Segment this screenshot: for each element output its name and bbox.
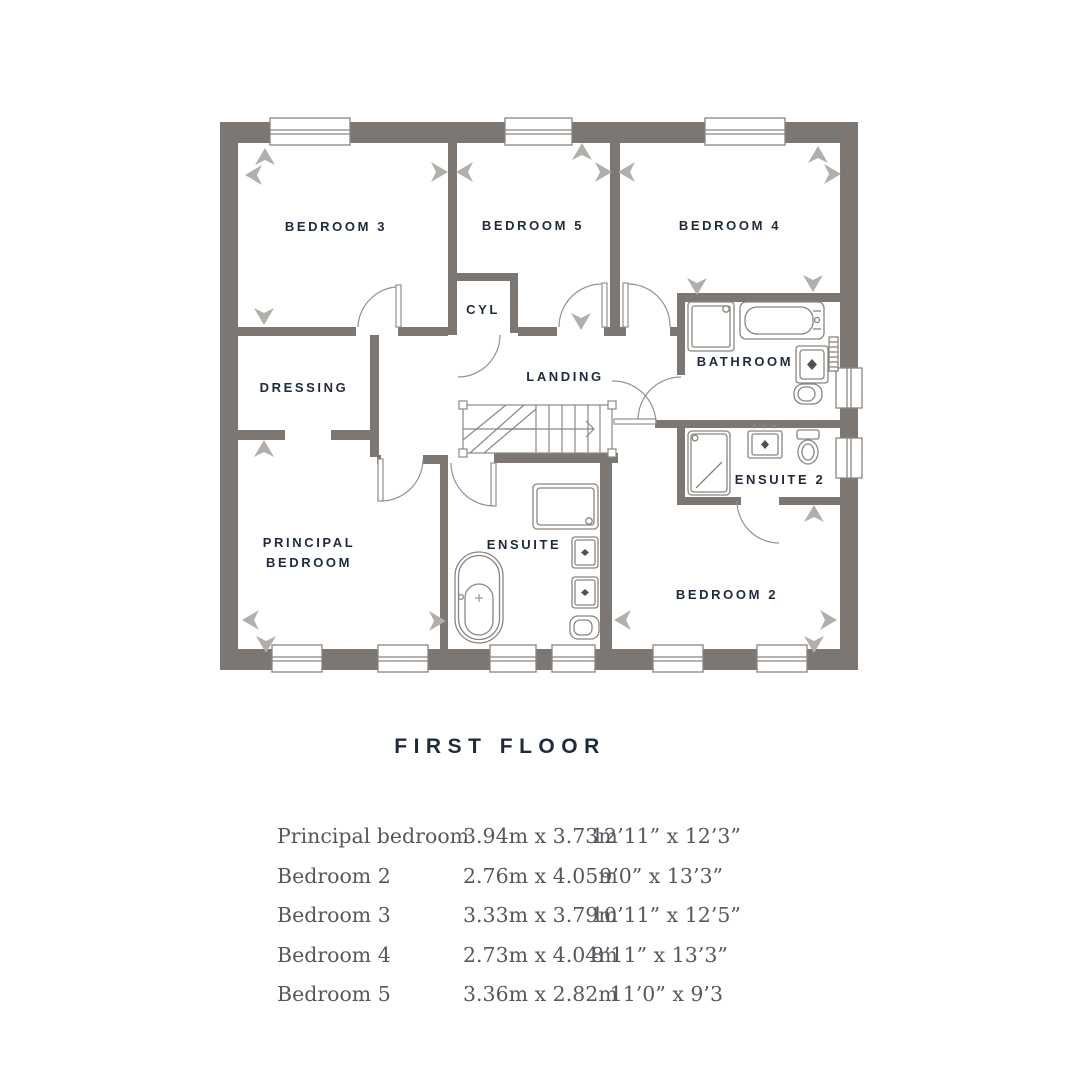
direction-chevron-icon — [245, 165, 262, 185]
table-row: Bedroom 4 2.73m x 4.04m 8’11” x 13’3” — [277, 936, 723, 976]
toilet — [797, 430, 819, 464]
window — [378, 645, 428, 672]
room-name-cell: Bedroom 2 — [277, 857, 463, 897]
shower — [688, 302, 734, 351]
room-label-bedroom-4: BEDROOM 4 — [679, 218, 781, 233]
window — [552, 645, 595, 672]
direction-chevron-icon — [254, 440, 274, 457]
room-label-bedroom-3: BEDROOM 3 — [285, 219, 387, 234]
window — [836, 438, 862, 478]
direction-chevron-icon — [431, 162, 448, 182]
sink — [572, 577, 598, 608]
room-label-landing: LANDING — [526, 369, 603, 384]
room-label-bedroom-5: BEDROOM 5 — [482, 218, 584, 233]
direction-chevron-icon — [456, 162, 473, 182]
direction-chevron-icon — [687, 278, 707, 295]
direction-chevron-icon — [572, 143, 592, 160]
room-name-cell: Bedroom 3 — [277, 896, 463, 936]
window — [490, 645, 536, 672]
sink — [796, 346, 828, 383]
window — [272, 645, 322, 672]
radiator — [829, 337, 838, 371]
direction-chevron-icon — [820, 610, 837, 630]
window — [705, 118, 785, 145]
sink — [572, 537, 598, 568]
metric-dimensions-cell: 3.36m x 2.82m — [463, 975, 591, 1015]
direction-chevron-icon — [803, 275, 823, 292]
room-label-ensuite-2: ENSUITE 2 — [735, 472, 826, 487]
table-row: Principal bedroom 3.94m x 3.73m 12’11” x… — [277, 817, 723, 857]
direction-chevron-icon — [571, 313, 591, 330]
shower — [688, 431, 730, 495]
direction-chevron-icon — [242, 610, 259, 630]
direction-chevron-icon — [808, 146, 828, 163]
room-label-bathroom: BATHROOM — [697, 354, 793, 369]
room-label-principal-line1: PRINCIPAL — [263, 535, 356, 550]
metric-dimensions-cell: 2.73m x 4.04m — [463, 936, 591, 976]
metric-dimensions-cell: 3.33m x 3.79m — [463, 896, 591, 936]
window — [270, 118, 350, 145]
direction-chevron-icon — [804, 505, 824, 522]
direction-chevron-icon — [824, 164, 841, 184]
imperial-dimensions-cell: 11’0” x 9’3 — [591, 975, 723, 1015]
direction-chevron-icon — [255, 148, 275, 165]
room-name-cell: Bedroom 4 — [277, 936, 463, 976]
freestanding-bathtub — [455, 552, 503, 643]
direction-chevron-icon — [254, 308, 274, 325]
direction-chevron-icon — [595, 162, 612, 182]
toilet — [794, 384, 822, 404]
door-arc — [458, 335, 500, 377]
window — [653, 645, 703, 672]
room-label-bedroom-2: BEDROOM 2 — [676, 587, 778, 602]
room-label-principal-line2: BEDROOM — [266, 555, 352, 570]
window — [505, 118, 572, 145]
door-arc — [623, 283, 670, 327]
room-name-cell: Principal bedroom — [277, 817, 463, 857]
door-arc — [358, 285, 401, 327]
bathtub — [740, 302, 824, 339]
room-label-ensuite: ENSUITE — [487, 537, 562, 552]
room-label-dressing: DRESSING — [260, 380, 349, 395]
staircase — [459, 401, 616, 457]
direction-chevron-icon — [618, 162, 635, 182]
window — [757, 645, 807, 672]
door-arc — [737, 501, 779, 543]
table-row: Bedroom 3 3.33m x 3.79m 10’11” x 12’5” — [277, 896, 723, 936]
toilet — [570, 616, 599, 639]
direction-chevron-icon — [614, 610, 631, 630]
table-row: Bedroom 2 2.76m x 4.05m 9’0” x 13’3” — [277, 857, 723, 897]
room-name-cell: Bedroom 5 — [277, 975, 463, 1015]
imperial-dimensions-cell: 12’11” x 12’3” — [591, 817, 723, 857]
floor-title: FIRST FLOOR — [0, 735, 1000, 759]
door-arc — [378, 459, 423, 501]
window — [836, 368, 862, 408]
door-arc — [612, 381, 656, 424]
table-row: Bedroom 5 3.36m x 2.82m 11’0” x 9’3 — [277, 975, 723, 1015]
metric-dimensions-cell: 3.94m x 3.73m — [463, 817, 591, 857]
imperial-dimensions-cell: 8’11” x 13’3” — [591, 936, 723, 976]
door-arc — [638, 377, 681, 420]
shower — [533, 484, 598, 529]
sink — [748, 424, 782, 459]
dimensions-table: Principal bedroom 3.94m x 3.73m 12’11” x… — [277, 817, 723, 1015]
floor-plan: BEDROOM 3 BEDROOM 5 BEDROOM 4 CYL LANDIN… — [0, 0, 1080, 710]
metric-dimensions-cell: 2.76m x 4.05m — [463, 857, 591, 897]
room-label-cyl: CYL — [466, 302, 500, 317]
door-arc — [451, 463, 496, 506]
imperial-dimensions-cell: 9’0” x 13’3” — [591, 857, 723, 897]
imperial-dimensions-cell: 10’11” x 12’5” — [591, 896, 723, 936]
